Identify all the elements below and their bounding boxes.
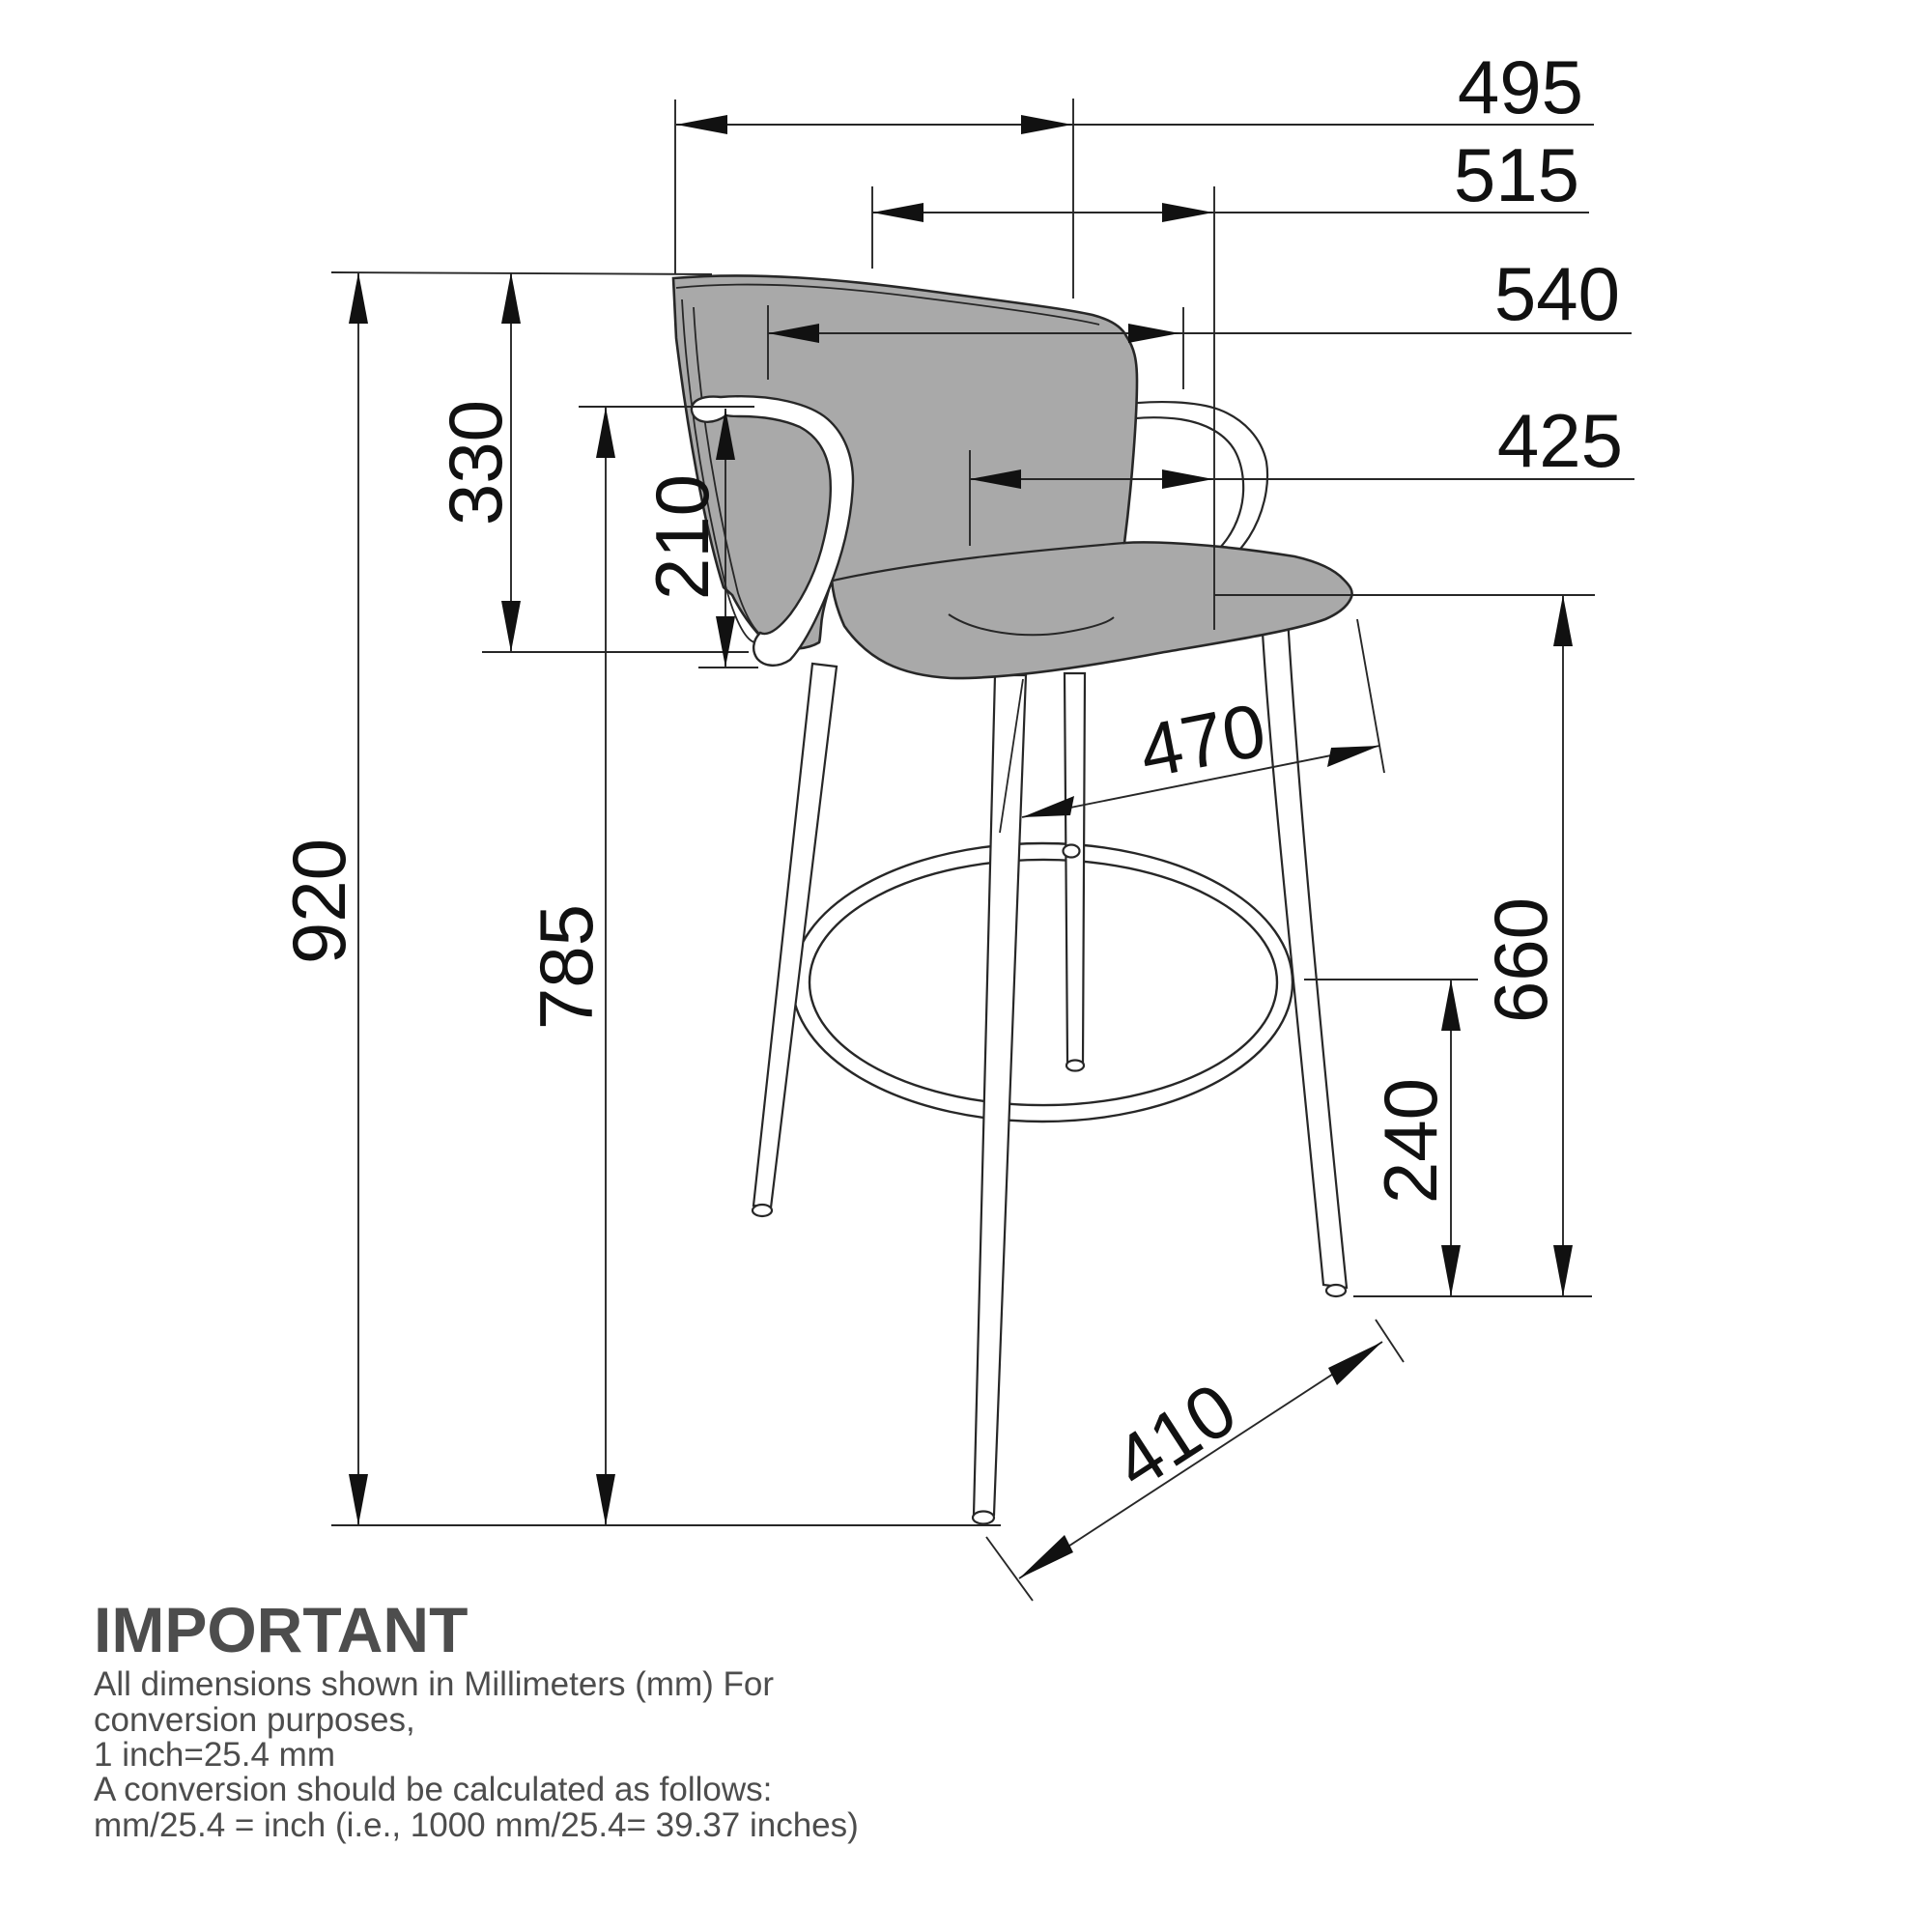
svg-text:conversion purposes,: conversion purposes, (94, 1701, 415, 1739)
svg-text:All dimensions shown in Millim: All dimensions shown in Millimeters (mm)… (94, 1665, 774, 1703)
svg-text:515: 515 (1454, 132, 1579, 217)
svg-text:330: 330 (433, 400, 518, 526)
svg-text:785: 785 (524, 904, 609, 1030)
svg-text:540: 540 (1494, 251, 1620, 336)
svg-text:495: 495 (1458, 44, 1583, 129)
svg-text:660: 660 (1478, 897, 1563, 1023)
svg-text:210: 210 (639, 474, 724, 600)
svg-text:IMPORTANT: IMPORTANT (94, 1594, 468, 1665)
svg-text:mm/25.4 = inch (i.e., 1000 mm/: mm/25.4 = inch (i.e., 1000 mm/25.4= 39.3… (94, 1806, 859, 1844)
svg-text:A conversion should be calcula: A conversion should be calculated as fol… (94, 1771, 772, 1808)
svg-text:425: 425 (1497, 398, 1623, 483)
svg-text:1 inch=25.4 mm: 1 inch=25.4 mm (94, 1736, 335, 1774)
svg-text:920: 920 (276, 838, 361, 964)
svg-text:240: 240 (1368, 1078, 1453, 1204)
